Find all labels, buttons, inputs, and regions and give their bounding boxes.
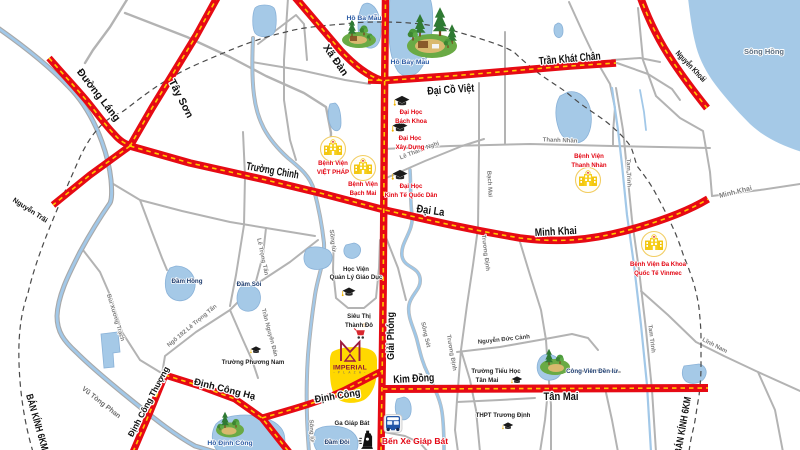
svg-text:- P L A Z A -: - P L A Z A - [333,371,366,375]
svg-text:Quản Lý Giáo Dục: Quản Lý Giáo Dục [330,274,383,281]
svg-text:Kinh Tế Quốc Dân: Kinh Tế Quốc Dân [385,192,438,199]
svg-text:VIỆT PHÁP: VIỆT PHÁP [317,168,349,176]
svg-text:Bạch Mai: Bạch Mai [350,190,377,197]
svg-text:Siêu Thị: Siêu Thị [347,313,371,320]
svg-text:Sông Hồng: Sông Hồng [744,47,784,56]
svg-text:Hồ Định Công: Hồ Định Công [207,438,252,447]
svg-text:Đầm Hồng: Đầm Hồng [172,278,203,285]
svg-text:Tam Trinh: Tam Trinh [625,159,632,188]
svg-text:Bệnh Viện: Bệnh Viện [574,153,604,160]
svg-text:Học Viện: Học Viện [343,266,369,273]
svg-text:Kim Đồng: Kim Đồng [393,372,435,386]
svg-text:Thanh Nhàn: Thanh Nhàn [543,137,578,144]
svg-text:Bến Xe Giáp Bát: Bến Xe Giáp Bát [382,436,448,446]
svg-text:Bệnh Viện Đa Khoa: Bệnh Viện Đa Khoa [630,261,687,268]
svg-text:Công Viên Đền lừ: Công Viên Đền lừ [566,368,618,375]
svg-text:THPT Trương Định: THPT Trương Định [476,412,531,419]
svg-text:Tân Mai: Tân Mai [544,391,579,403]
svg-text:Giải Phóng: Giải Phóng [385,312,397,360]
svg-text:Bách Khoa: Bách Khoa [395,118,427,125]
svg-text:Trường Tiểu Học: Trường Tiểu Học [471,368,521,375]
svg-text:Thành Đô: Thành Đô [345,322,373,329]
svg-text:Tân Mai: Tân Mai [476,377,499,384]
svg-text:Đại Học: Đại Học [399,135,422,142]
svg-text:Trường Phương Nam: Trường Phương Nam [222,359,285,366]
svg-text:Đại Học: Đại Học [400,109,423,116]
svg-text:Minh Khai: Minh Khai [535,225,578,239]
svg-text:Đầm Sôi: Đầm Sôi [237,281,262,288]
svg-text:Hồ Bảy Mẫu: Hồ Bảy Mẫu [391,57,430,66]
svg-text:Bệnh Viện: Bệnh Viện [318,160,348,167]
svg-text:Xây Dựng: Xây Dựng [396,144,425,151]
svg-text:Quốc Tế Vinmec: Quốc Tế Vinmec [634,270,682,277]
svg-text:Hồ Ba Mẫu: Hồ Ba Mẫu [346,13,381,22]
svg-text:Sông lừ: Sông lừ [307,419,314,443]
svg-text:Thanh Nhàn: Thanh Nhàn [571,162,606,169]
svg-text:Đại Học: Đại Học [400,183,423,190]
svg-text:Đầm Đôi: Đầm Đôi [324,439,349,446]
svg-text:Ga Giáp Bát: Ga Giáp Bát [335,420,370,427]
svg-text:Bệnh Viện: Bệnh Viện [348,181,378,188]
